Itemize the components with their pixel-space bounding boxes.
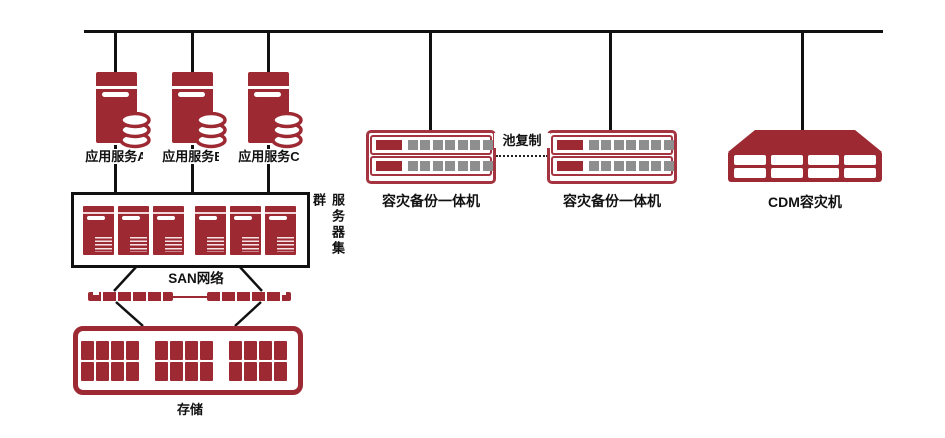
- pool-replication-dotted-link: [496, 155, 548, 157]
- rack-unit-port: [483, 161, 493, 171]
- disk-icon: [170, 341, 183, 360]
- disk-icon: [96, 362, 109, 381]
- disk-icon: [111, 362, 124, 381]
- cdm-slot: [844, 168, 876, 178]
- disk-icon: [244, 362, 257, 381]
- rack-cap-line: [118, 212, 149, 214]
- rack-cap-line: [230, 212, 261, 214]
- disk-icon: [155, 341, 168, 360]
- disk-group: [155, 341, 213, 381]
- tower-cap-line: [248, 86, 289, 89]
- rack-unit-port: [664, 161, 674, 171]
- rack-server-icon: [83, 206, 114, 255]
- san-switch-left-segment: [88, 292, 173, 301]
- rack-unit-port: [601, 140, 611, 150]
- database-icon: [269, 112, 306, 149]
- rack-cap-line: [83, 212, 114, 214]
- san-to-storage-right-link: [235, 302, 261, 326]
- rack-drive-slot: [87, 216, 105, 220]
- rack-unit-port: [433, 161, 443, 171]
- drop-line-app-server-a: [114, 31, 117, 72]
- cluster-to-san-right-link: [239, 266, 262, 291]
- rack-server-icon: [265, 206, 296, 255]
- tower-cap-line: [172, 86, 213, 89]
- disk-icon: [81, 341, 94, 360]
- disk-icon: [126, 362, 139, 381]
- rack-unit-port: [639, 140, 649, 150]
- rack-unit-port: [651, 161, 661, 171]
- rack-unit-port: [626, 140, 636, 150]
- drop-line-app-server-c: [267, 31, 270, 72]
- cdm-slot: [808, 155, 840, 165]
- database-icon: [193, 112, 230, 149]
- top-bus-line: [84, 30, 883, 33]
- storage-array-box: [73, 326, 303, 395]
- disk-icon: [229, 341, 242, 360]
- disk-icon: [185, 362, 198, 381]
- rack-unit-port: [408, 140, 418, 150]
- rack-vents: [165, 237, 182, 252]
- cdm-slot: [734, 155, 766, 165]
- rack-unit-port: [626, 161, 636, 171]
- rack-unit-port: [470, 161, 480, 171]
- disk-icon: [244, 341, 257, 360]
- drop-line-app-server-b: [191, 31, 194, 72]
- rack-unit-panel: [557, 161, 583, 171]
- disk-icon: [185, 341, 198, 360]
- rack-unit-port: [589, 140, 599, 150]
- dr-appliance-2-icon: [547, 130, 677, 184]
- rack-unit-port: [614, 161, 624, 171]
- disk-icon: [170, 362, 183, 381]
- tower-drive-slot: [178, 92, 205, 97]
- rack-unit-panel: [376, 140, 402, 150]
- cdm-machine-roof-icon: [728, 130, 882, 152]
- disk-icon: [259, 362, 272, 381]
- disk-icon: [155, 362, 168, 381]
- drop-line-dr-appliance-1: [429, 31, 432, 130]
- disk-icon: [274, 362, 287, 381]
- rack-unit-port: [614, 140, 624, 150]
- tower-drive-slot: [102, 92, 129, 97]
- rack-unit-port: [408, 161, 418, 171]
- rack-vents: [207, 237, 224, 252]
- disk-group: [81, 341, 139, 381]
- disk-icon: [126, 341, 139, 360]
- rack-server-icon: [230, 206, 261, 255]
- cdm-slot: [808, 168, 840, 178]
- rack-cap-line: [195, 212, 226, 214]
- san-network-label: SAN网络: [152, 271, 240, 286]
- disk-icon: [229, 362, 242, 381]
- app-server-c-label: 应用服务C: [219, 149, 319, 164]
- rack-vents: [277, 237, 294, 252]
- rack-unit-port: [445, 140, 455, 150]
- rack-unit: [551, 135, 673, 155]
- rack-unit-panel: [376, 161, 402, 171]
- rack-cap-line: [153, 212, 184, 214]
- disk-icon: [274, 341, 287, 360]
- rack-unit-port: [664, 140, 674, 150]
- rack-server-icon: [118, 206, 149, 255]
- cdm-slot: [771, 168, 803, 178]
- rack-drive-slot: [234, 216, 252, 220]
- rack-vents: [95, 237, 112, 252]
- rack-unit-port: [589, 161, 599, 171]
- rack-unit-port: [639, 161, 649, 171]
- disk-icon: [111, 341, 124, 360]
- dr-appliance-1-icon: [366, 130, 496, 184]
- san-notch: [280, 292, 286, 295]
- rack-server-icon: [153, 206, 184, 255]
- disk-icon: [81, 362, 94, 381]
- rack-unit: [370, 156, 492, 176]
- storage-label: 存储: [140, 402, 240, 417]
- rack-unit-port: [445, 161, 455, 171]
- disk-icon: [200, 362, 213, 381]
- rack-drive-slot: [199, 216, 217, 220]
- rack-drive-slot: [269, 216, 287, 220]
- disk-icon: [200, 341, 213, 360]
- disk-icon: [259, 341, 272, 360]
- rack-drive-slot: [157, 216, 175, 220]
- dr-appliance-1-label: 容灾备份一体机: [366, 194, 496, 209]
- rack-unit-panel: [557, 140, 583, 150]
- dr-appliance-2-label: 容灾备份一体机: [547, 194, 677, 209]
- drop-line-dr-appliance-2: [609, 31, 612, 130]
- server-cluster-label: 服务器集群: [309, 193, 347, 269]
- rack-unit-port: [458, 140, 468, 150]
- cdm-machine-body-icon: [728, 151, 882, 182]
- rack-vents: [242, 237, 259, 252]
- rack-unit: [551, 156, 673, 176]
- san-to-storage-left-link: [116, 302, 143, 326]
- disk-group: [229, 341, 287, 381]
- rack-cap-line: [265, 212, 296, 214]
- disk-icon: [96, 341, 109, 360]
- rack-unit-port: [601, 161, 611, 171]
- tower-drive-slot: [254, 92, 281, 97]
- san-switch-right-segment: [207, 292, 291, 301]
- cdm-slot: [844, 155, 876, 165]
- tower-cap-line: [96, 86, 137, 89]
- cdm-slot: [771, 155, 803, 165]
- rack-unit-port: [651, 140, 661, 150]
- rack-drive-slot: [122, 216, 140, 220]
- topology-diagram: 应用服务A 应用服务B 应用服务C 服务器集群 SAN网络: [0, 0, 945, 438]
- rack-unit: [370, 135, 492, 155]
- cluster-to-san-left-link: [114, 266, 137, 291]
- san-notch: [93, 292, 99, 295]
- cdm-slot: [734, 168, 766, 178]
- rack-unit-port: [470, 140, 480, 150]
- cdm-machine-label: CDM容灾机: [728, 195, 882, 210]
- database-icon: [117, 112, 154, 149]
- rack-vents: [130, 237, 147, 252]
- pool-replication-label: 池复制: [494, 133, 550, 148]
- rack-unit-port: [483, 140, 493, 150]
- rack-unit-port: [420, 161, 430, 171]
- san-switch-icon: [88, 292, 291, 301]
- rack-unit-port: [420, 140, 430, 150]
- rack-server-icon: [195, 206, 226, 255]
- rack-unit-port: [433, 140, 443, 150]
- server-cluster-box: [71, 192, 310, 268]
- san-wire: [173, 296, 207, 298]
- drop-line-cdm: [801, 31, 804, 130]
- rack-unit-port: [458, 161, 468, 171]
